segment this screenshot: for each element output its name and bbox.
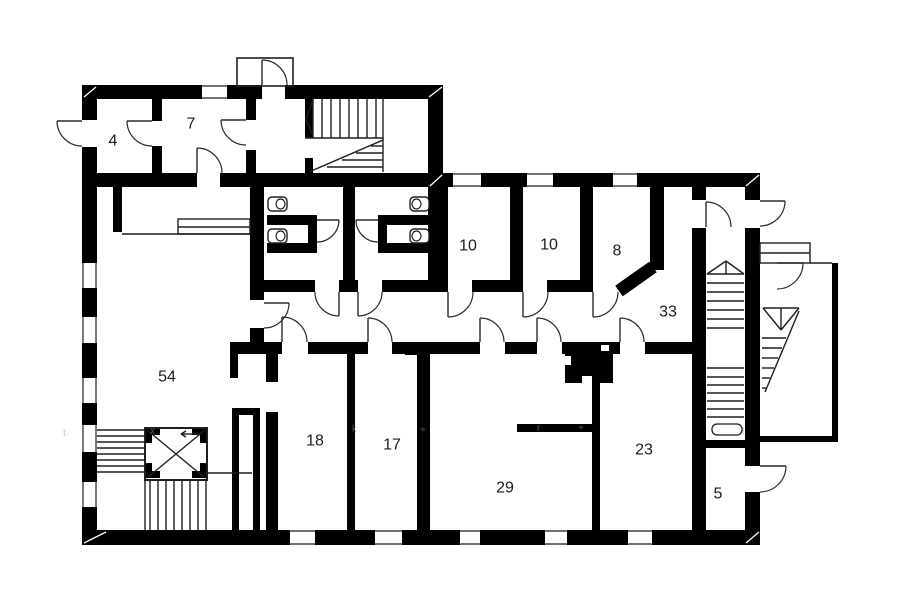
floor-plan-page: 47101083354181729235txk+r+t (0, 0, 900, 604)
wall-segment (266, 412, 278, 530)
room-label-8: 8 (613, 243, 622, 260)
wall-segment (645, 342, 706, 354)
watermark-mark: t (742, 426, 745, 437)
toilet-icon (410, 229, 429, 243)
room-label-23: 23 (635, 442, 653, 459)
wall-segment (285, 85, 443, 99)
wall-segment (428, 85, 443, 187)
room-label-18: 18 (306, 433, 324, 450)
wall-segment (745, 173, 760, 200)
window-gap (628, 530, 652, 545)
wall-segment (200, 463, 207, 478)
shaft-notch (565, 356, 571, 365)
room-label-5: 5 (714, 486, 723, 503)
room-label-4: 4 (109, 133, 118, 150)
window-gap (375, 530, 402, 545)
wall-segment (510, 186, 523, 280)
wall-segment (266, 354, 278, 382)
window-gap (82, 263, 97, 288)
room-label-10: 10 (459, 238, 477, 255)
wall-segment (253, 415, 260, 532)
wall-segment (308, 225, 317, 243)
window-gap (613, 173, 637, 187)
room-label-54: 54 (158, 369, 176, 386)
wall-segment (405, 343, 417, 355)
wall-segment (267, 215, 317, 225)
watermark-mark: + (420, 425, 426, 436)
wall-segment (517, 424, 597, 432)
wall-segment (308, 342, 368, 354)
wall-segment (200, 428, 207, 443)
wall-segment (472, 280, 523, 292)
wall-segment (650, 186, 664, 270)
wall-segment (378, 225, 387, 243)
watermark-mark: t (63, 428, 66, 439)
wall-segment (692, 228, 706, 530)
wall-segment (82, 85, 262, 99)
wall-segment (267, 243, 317, 253)
wall-segment (592, 382, 600, 530)
wall-segment (82, 530, 760, 545)
wall-segment (250, 328, 264, 342)
wall-segment (145, 463, 152, 478)
shaft-notch (601, 345, 609, 351)
window-gap (453, 173, 481, 187)
wall-segment (152, 146, 162, 173)
room-label-10: 10 (540, 237, 558, 254)
wall-segment (305, 158, 313, 187)
wall-segment (255, 280, 315, 292)
wall-segment (343, 186, 355, 280)
toilet-icon (268, 229, 287, 243)
wall-segment (760, 436, 838, 442)
wall-segment (417, 343, 430, 532)
room-label-17: 17 (383, 437, 401, 454)
watermark-mark: + (578, 423, 584, 434)
window-gap (82, 378, 97, 403)
wall-segment (246, 150, 256, 173)
wall-segment (580, 186, 593, 280)
shaft-notch (582, 376, 592, 383)
wall-segment (378, 215, 428, 225)
window-gap (202, 85, 227, 99)
window-gap (545, 530, 567, 545)
wall-segment (339, 280, 358, 292)
wall-segment (378, 243, 428, 253)
wall-segment (246, 97, 256, 120)
wall-segment (230, 342, 282, 354)
wall-segment (692, 440, 760, 448)
room-label-29: 29 (496, 480, 514, 497)
wall-segment (382, 280, 448, 292)
wall-segment (692, 187, 706, 200)
wall-segment (232, 408, 260, 415)
wall-segment (505, 342, 537, 354)
floor-plan-canvas: 47101083354181729235txk+r+t (0, 0, 900, 604)
wall-segment (113, 186, 122, 232)
wall-segment (832, 263, 838, 442)
window-gap (527, 173, 553, 187)
wall-segment (547, 280, 593, 292)
wall-segment (428, 186, 448, 280)
toilet-icon (410, 197, 429, 211)
window-gap (82, 482, 97, 507)
wall-segment (220, 173, 443, 187)
wall-segment (347, 354, 355, 530)
wall-segment (745, 228, 760, 466)
wall-segment (230, 354, 238, 378)
toilet-icon (268, 197, 287, 211)
room-label-7: 7 (187, 116, 196, 133)
wall-segment (152, 97, 162, 121)
room-label-33: 33 (659, 304, 677, 321)
wall-segment (443, 173, 760, 187)
window-gap (82, 425, 97, 452)
watermark-mark: x (150, 426, 155, 437)
window-gap (460, 530, 480, 545)
window-gap (82, 317, 97, 343)
wall-segment (82, 173, 197, 187)
window-gap (290, 530, 315, 545)
